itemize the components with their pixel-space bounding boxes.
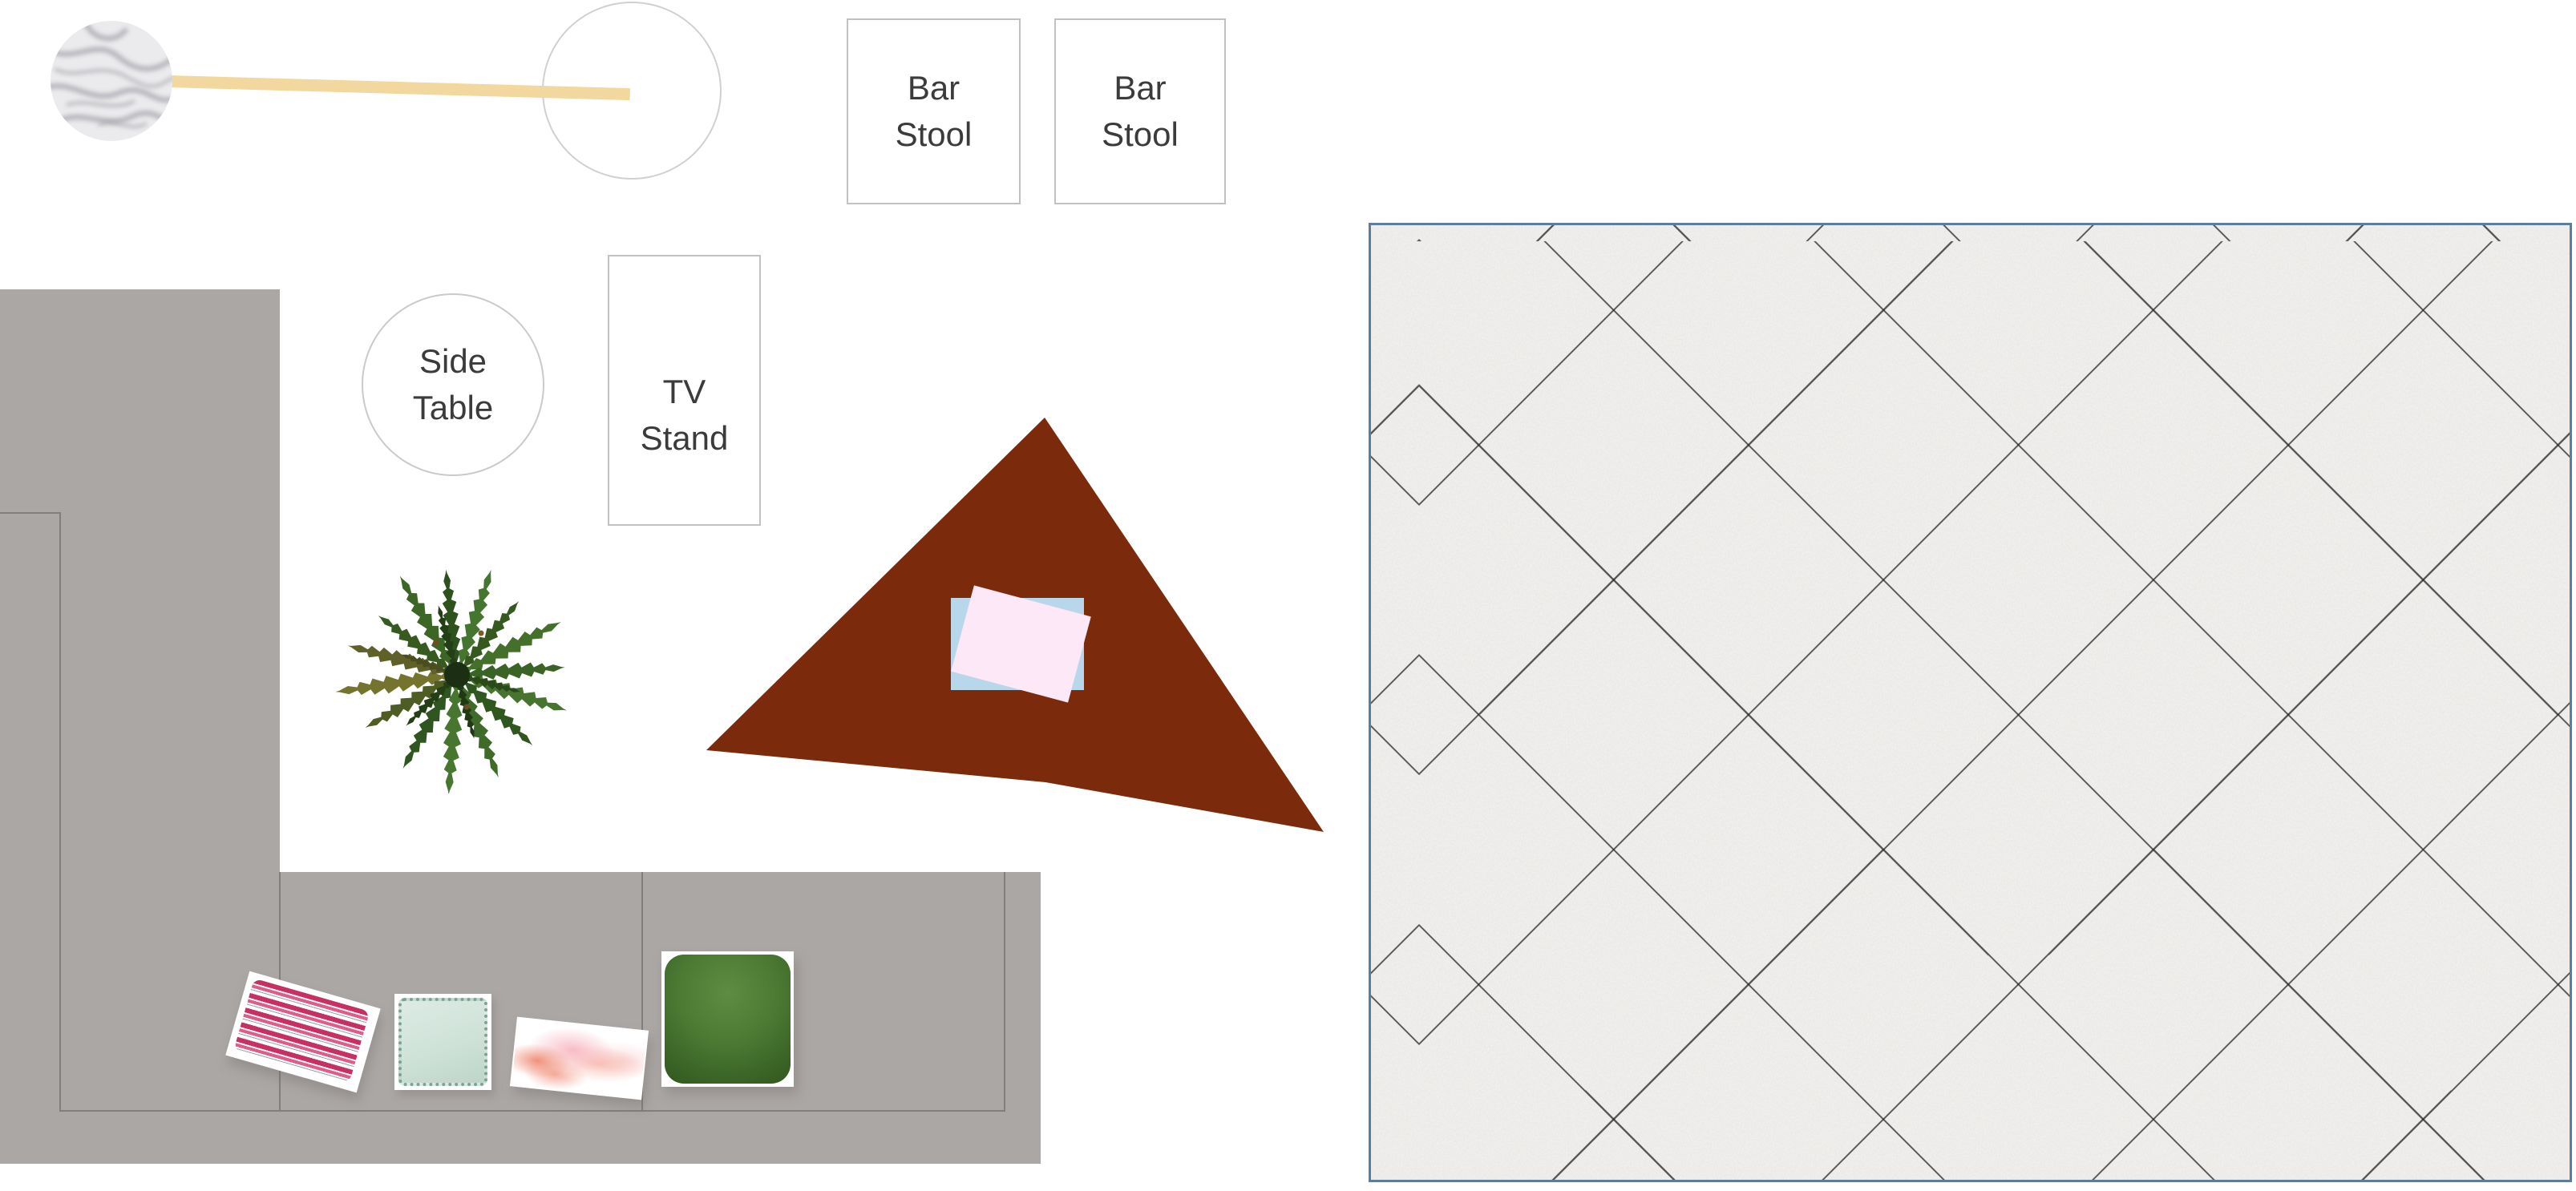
sofa-outline-left-line: [59, 512, 61, 1112]
bar-stool-1-box[interactable]: Bar Stool: [847, 18, 1021, 204]
watercolor-pillow-fabric: [512, 1019, 647, 1098]
side-table-circle[interactable]: Side Table: [362, 293, 544, 476]
bar-stool-2-label-line1: Bar: [1114, 65, 1166, 111]
side-table-label-line2: Table: [413, 385, 493, 431]
green-pillow-fabric: [665, 955, 791, 1084]
tile-floor-swatch[interactable]: [1369, 223, 2572, 1182]
watercolor-pillow[interactable]: [510, 1017, 649, 1100]
mint-pillow-fabric: [398, 998, 487, 1086]
sofa-outline-right-line: [1004, 872, 1005, 1112]
bar-stool-1-label-line2: Stool: [896, 111, 973, 158]
sofa-outline-bottom-line: [59, 1110, 1005, 1112]
marble-texture: [51, 21, 172, 141]
tv-stand-box[interactable]: TV Stand: [608, 255, 761, 526]
green-pillow[interactable]: [661, 951, 794, 1087]
mint-pompom-pillow[interactable]: [394, 994, 491, 1090]
bar-stool-1-label-line1: Bar: [908, 65, 960, 111]
tile-grout-lines: [1371, 225, 2570, 1180]
tv-stand-label-line1: TV: [663, 369, 706, 415]
plant-top-view[interactable]: [335, 556, 579, 793]
bar-stool-2-box[interactable]: Bar Stool: [1054, 18, 1226, 204]
tv-stand-label-line2: Stand: [641, 415, 729, 462]
plant-fronds: [335, 556, 579, 793]
marble-table-top[interactable]: [51, 21, 172, 141]
bar-stool-2-label-line2: Stool: [1102, 111, 1179, 158]
side-table-label-line1: Side: [419, 338, 487, 385]
sofa-outline-top-segment: [0, 512, 61, 514]
